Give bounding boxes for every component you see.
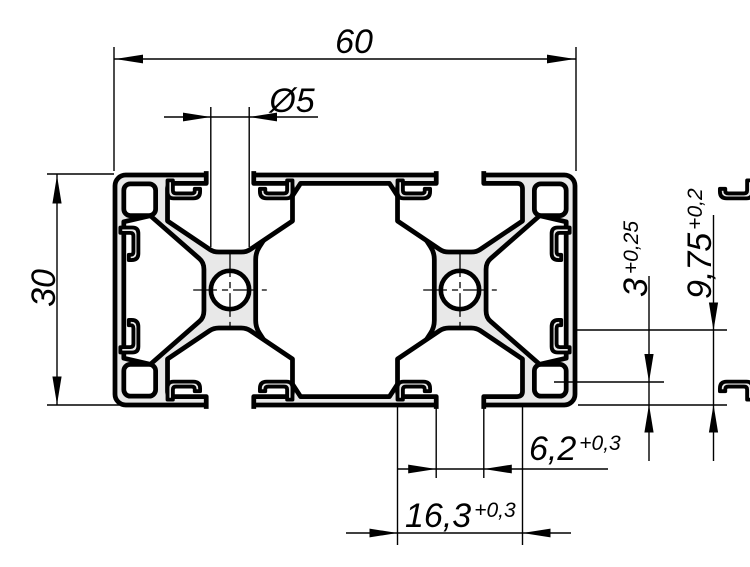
dim-label-hole: Ø5 — [268, 82, 314, 120]
dim-value: 16,3 — [405, 497, 471, 535]
dim-slot-opening: 6,2+0,3 — [398, 407, 622, 478]
corner-cavity-bottom-left — [124, 364, 156, 396]
dim-label-slot-depth: 9,75+0,2 — [681, 188, 719, 299]
dim-label-slot-inner-width: 16,3+0,3 — [405, 497, 516, 535]
dim-value: 3 — [617, 278, 655, 297]
drawing-canvas: 60 Ø5 30 9,75+0,2 3+0,25 6,2+0,3 — [0, 0, 750, 567]
dim-label-slot-opening: 6,2+0,3 — [529, 430, 621, 468]
dim-overall-height: 30 — [25, 174, 120, 405]
technical-drawing: 60 Ø5 30 9,75+0,2 3+0,25 6,2+0,3 — [0, 0, 750, 567]
corner-cavity-top-right — [534, 184, 566, 216]
bottom-slots — [168, 328, 750, 409]
dim-tolerance: +0,25 — [620, 221, 643, 274]
top-slots — [168, 171, 750, 252]
dim-overall-width: 60 — [114, 23, 576, 171]
dim-slot-inner-width: 16,3+0,3 — [346, 407, 571, 545]
dim-label-lip-height: 3+0,25 — [617, 221, 655, 297]
corner-cavity-bottom-right — [534, 364, 566, 396]
dim-label-height: 30 — [25, 269, 63, 307]
dim-value: 9,75 — [681, 233, 719, 299]
dim-tolerance: +0,2 — [684, 188, 707, 230]
dim-label-width: 60 — [335, 23, 373, 61]
dim-tolerance: +0,3 — [474, 499, 516, 522]
dim-tolerance: +0,3 — [579, 432, 621, 455]
dim-value: 6,2 — [529, 430, 576, 468]
corner-cavity-top-left — [124, 184, 156, 216]
